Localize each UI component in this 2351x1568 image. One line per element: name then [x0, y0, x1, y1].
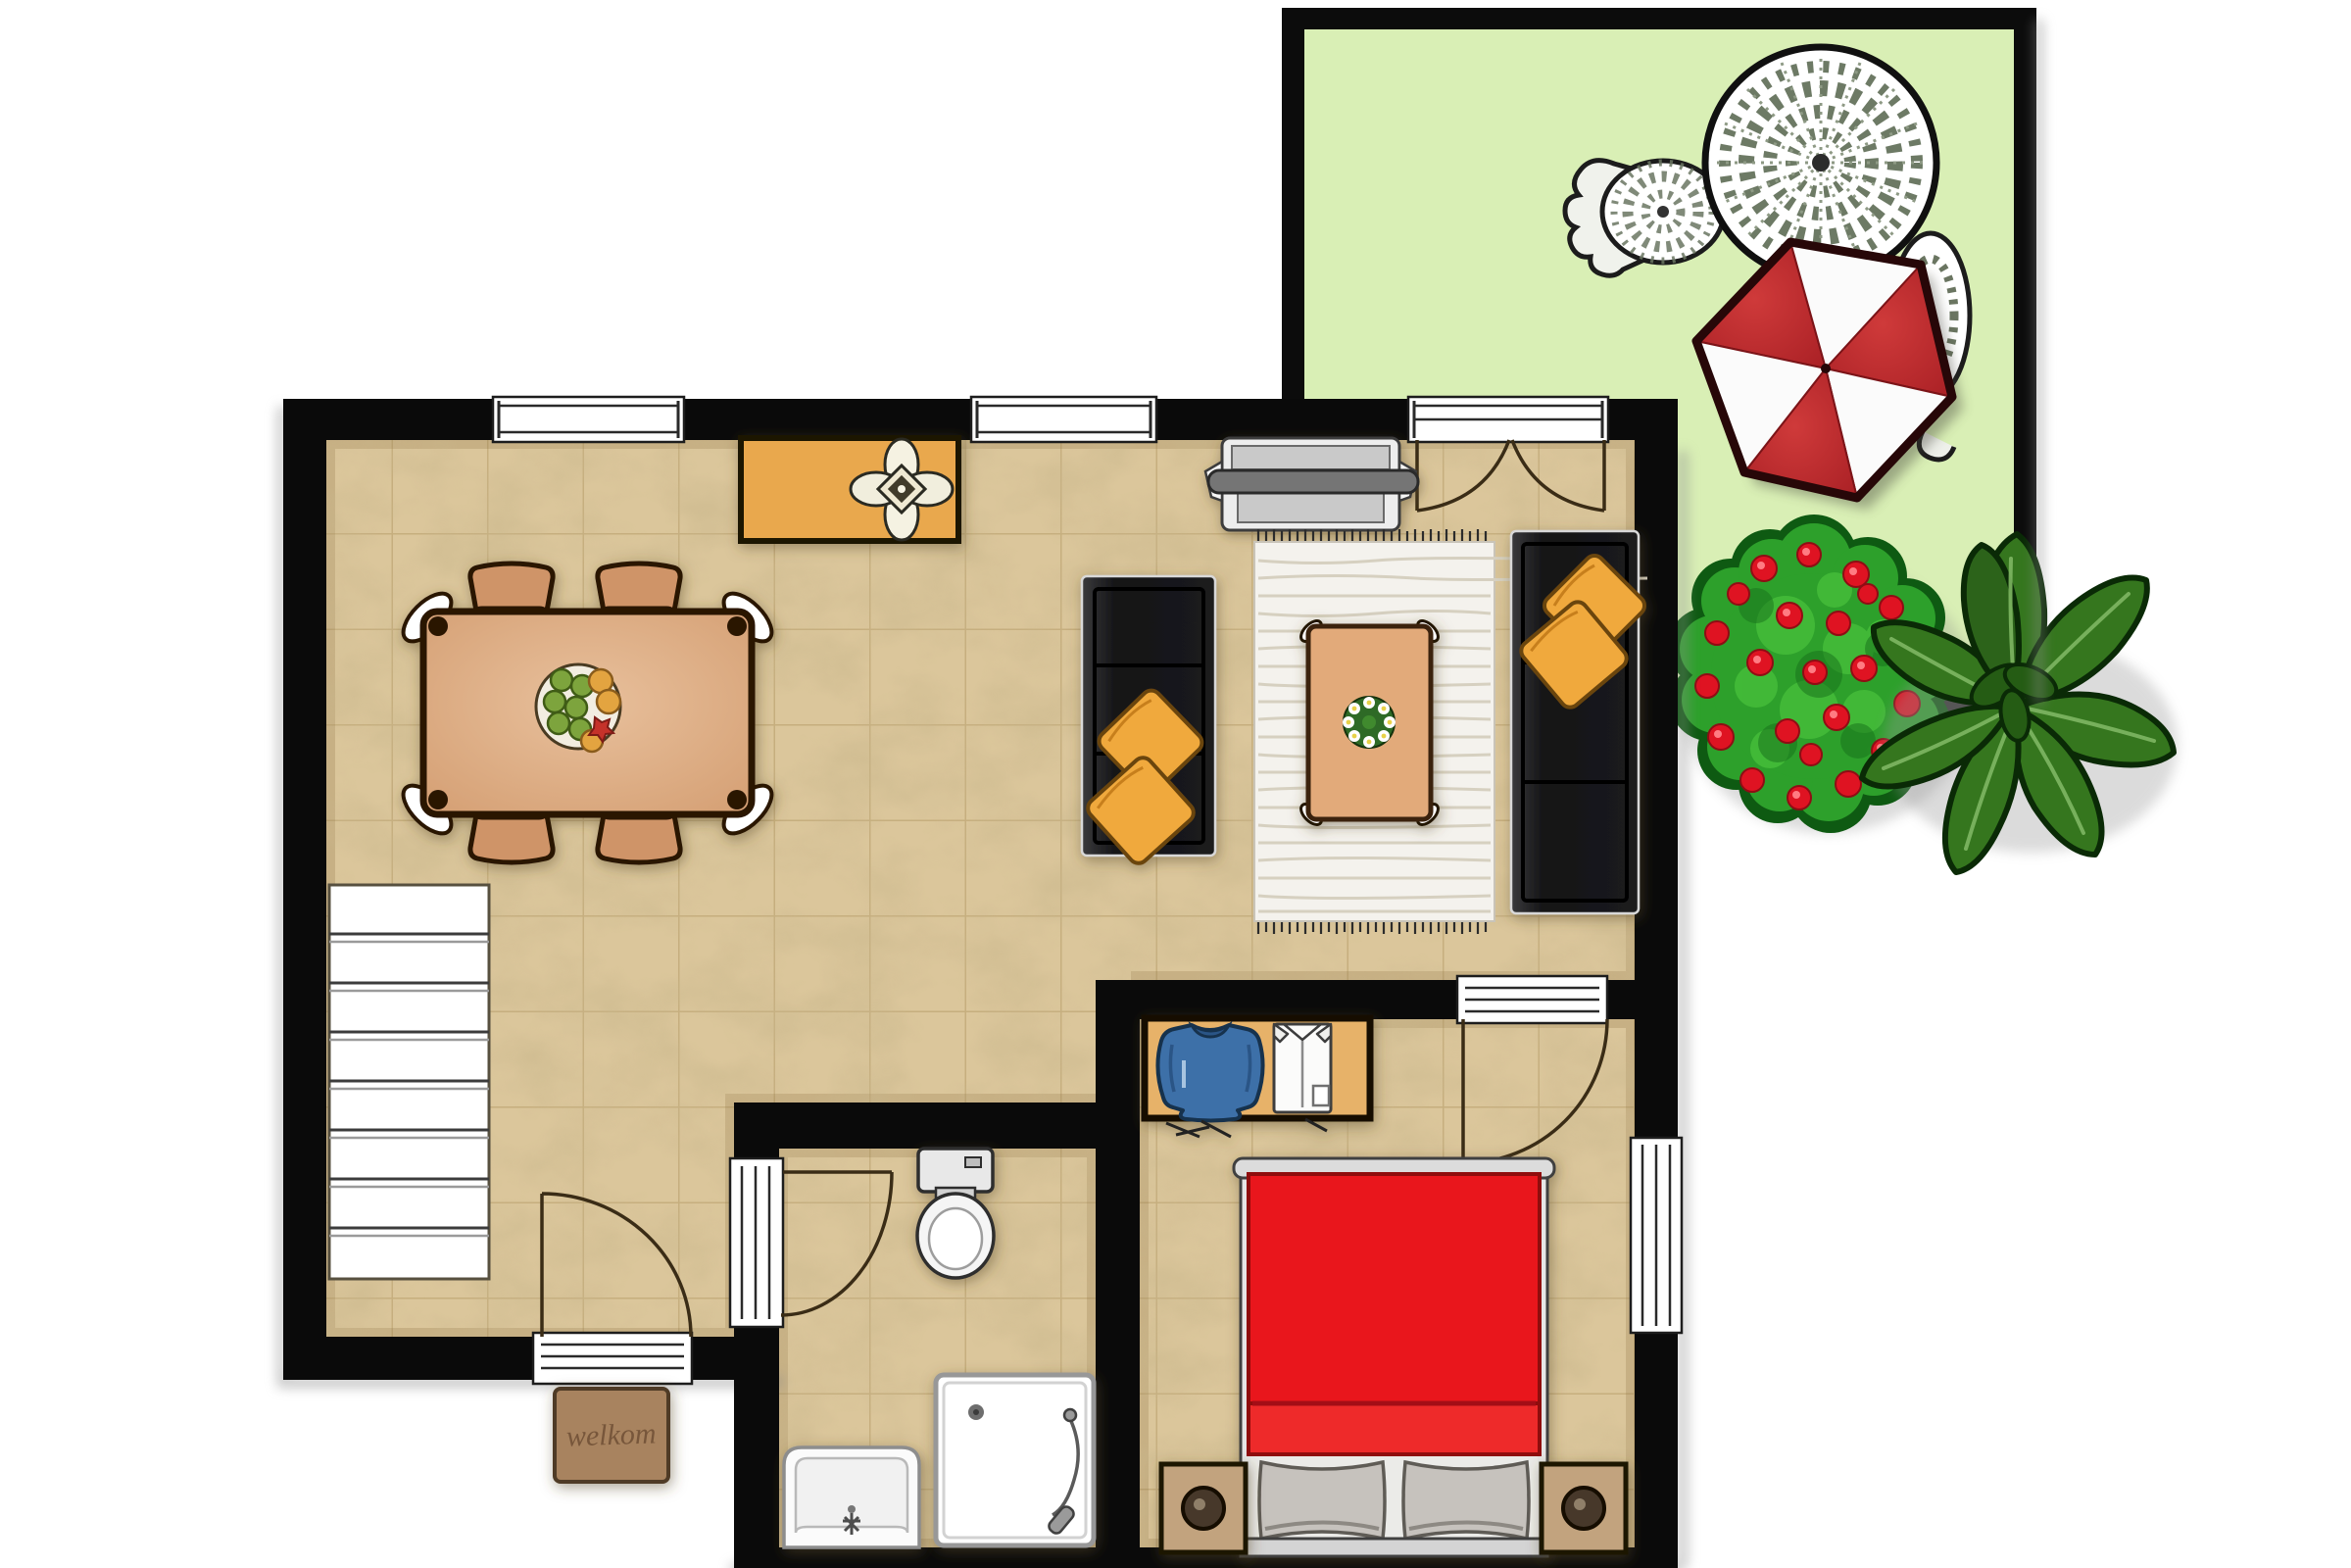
svg-text:welkom: welkom [565, 1417, 657, 1452]
